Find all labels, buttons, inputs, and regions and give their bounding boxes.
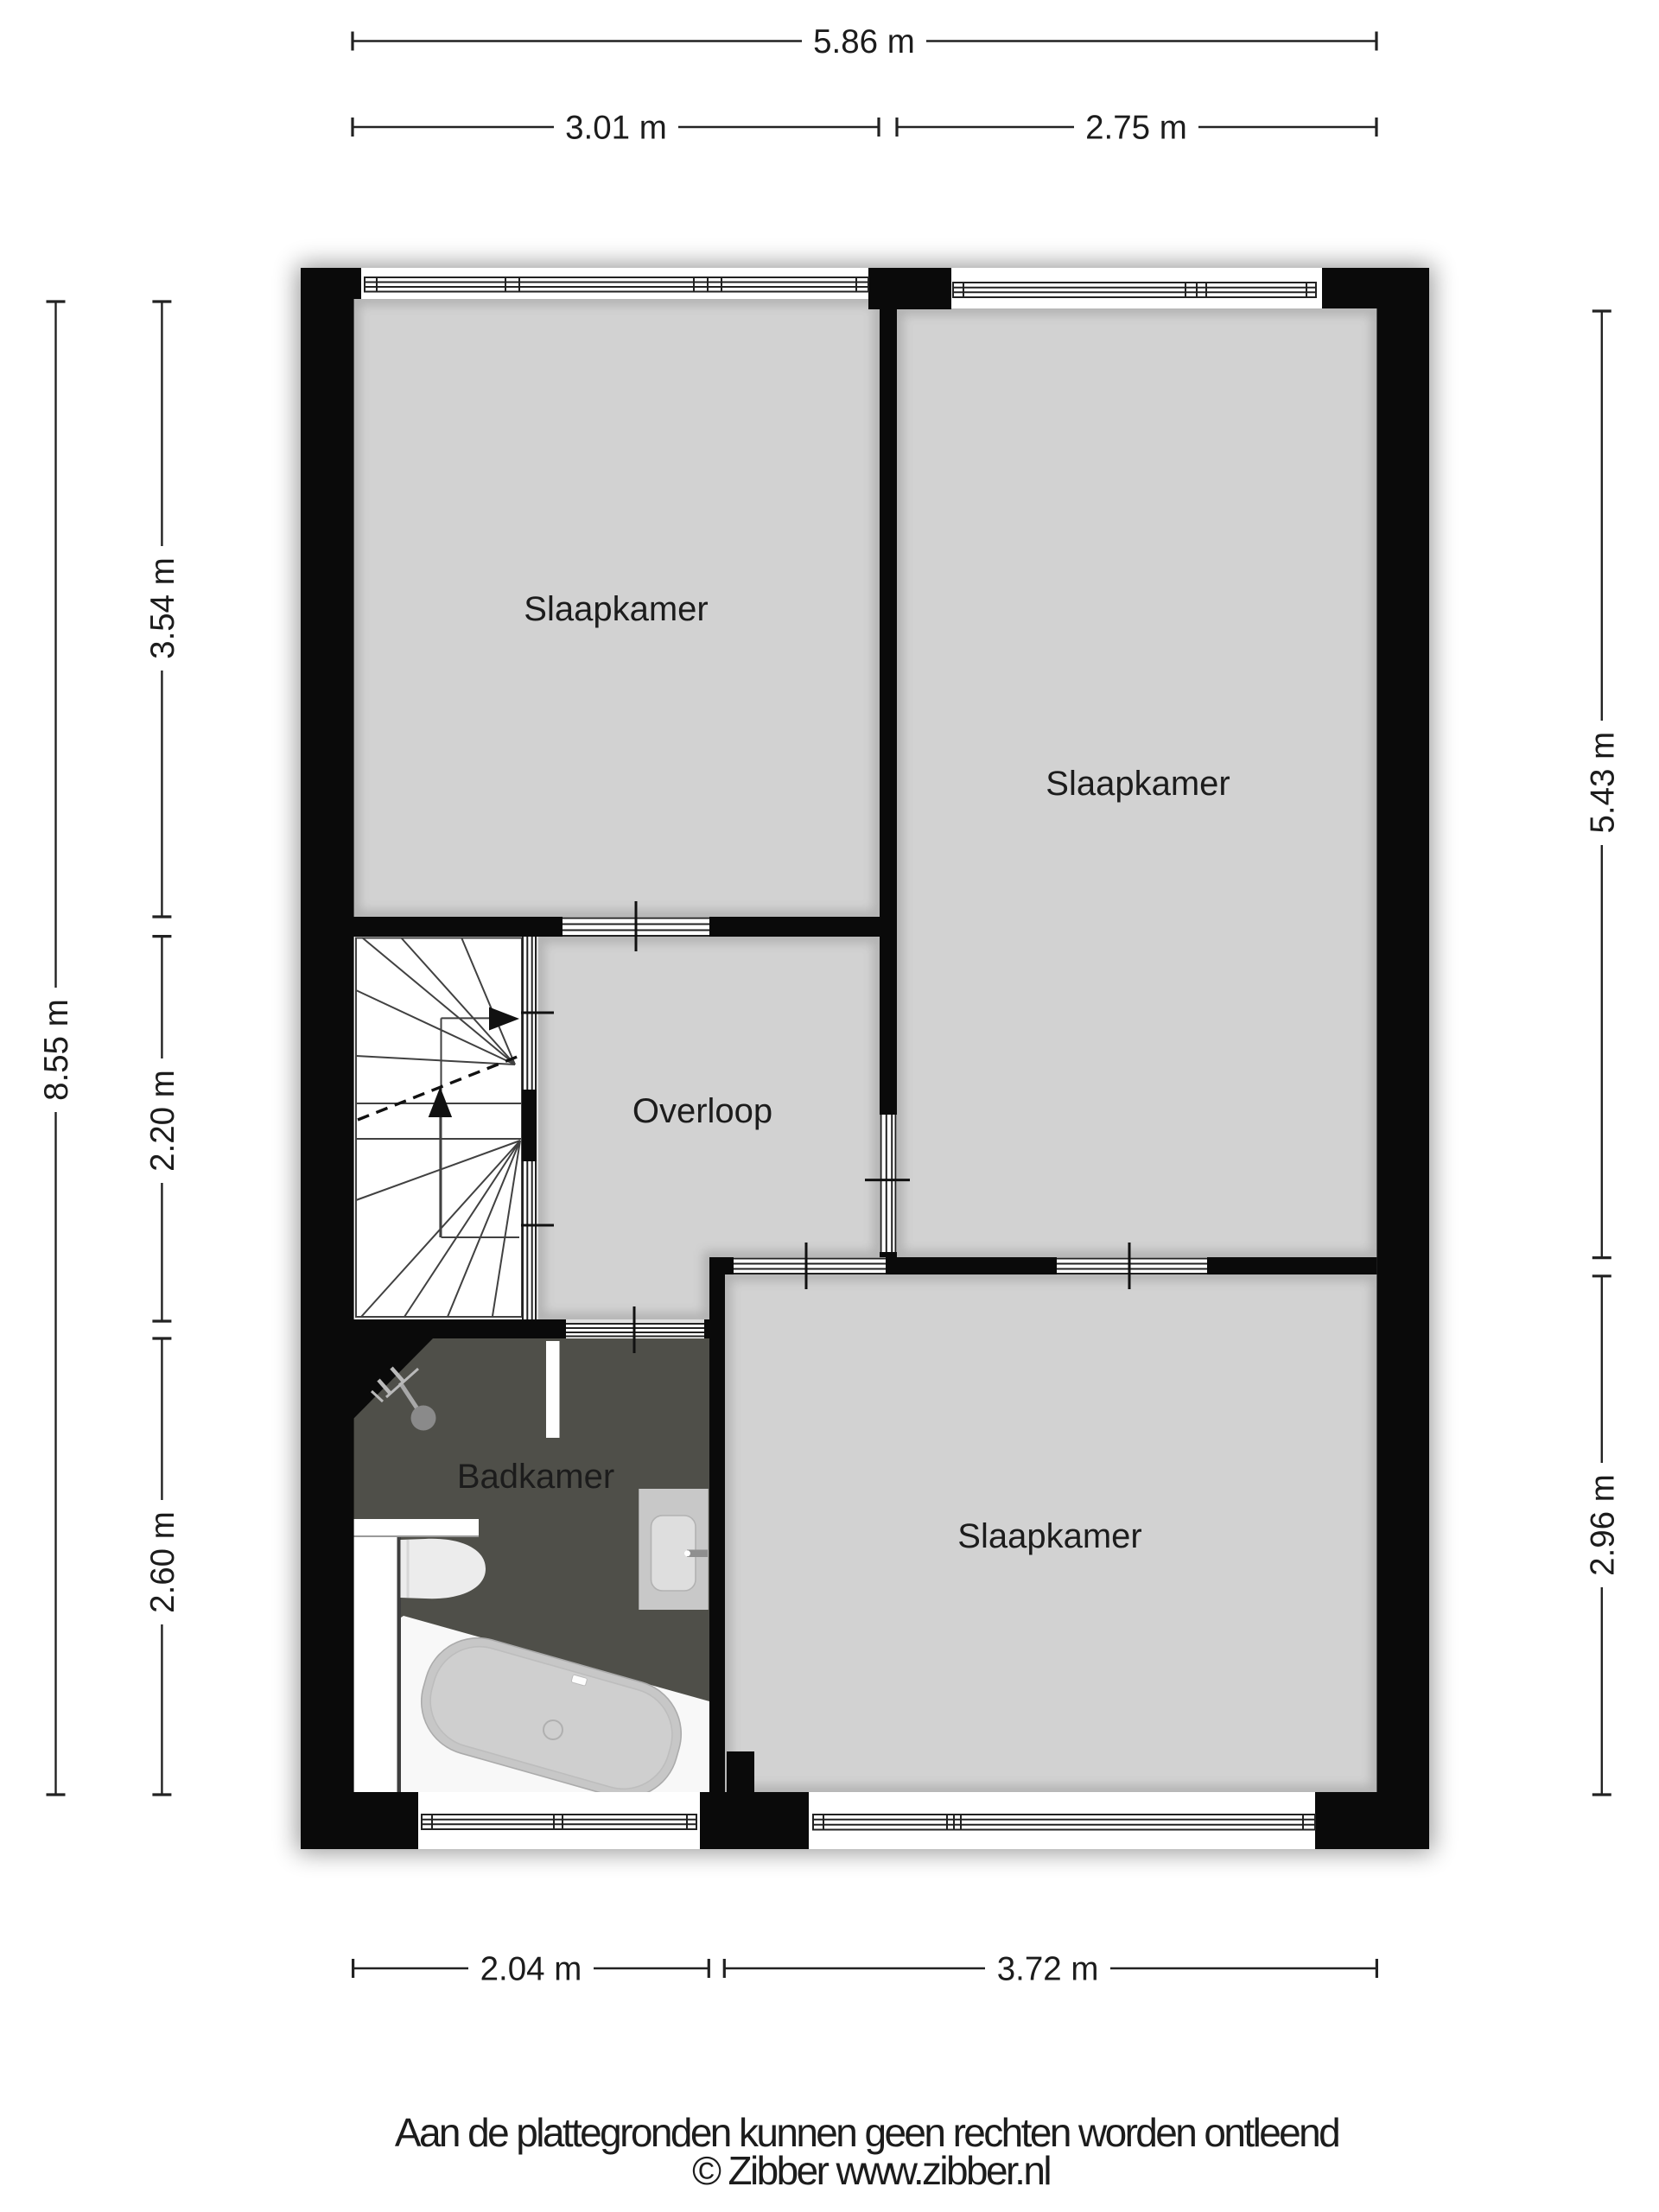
svg-text:Badkamer: Badkamer xyxy=(457,1458,614,1496)
svg-text:2.60 m: 2.60 m xyxy=(144,1511,181,1613)
svg-text:Overloop: Overloop xyxy=(632,1092,772,1130)
svg-text:Slaapkamer: Slaapkamer xyxy=(524,590,708,628)
svg-text:8.55 m: 8.55 m xyxy=(38,999,75,1101)
svg-text:2.20 m: 2.20 m xyxy=(144,1070,181,1172)
svg-text:2.04 m: 2.04 m xyxy=(480,1951,582,1988)
svg-text:3.54 m: 3.54 m xyxy=(144,557,181,659)
svg-text:3.72 m: 3.72 m xyxy=(997,1951,1099,1988)
svg-text:2.75 m: 2.75 m xyxy=(1085,110,1187,147)
svg-text:© Zibber www.zibber.nl: © Zibber www.zibber.nl xyxy=(692,2148,1050,2193)
svg-text:5.43 m: 5.43 m xyxy=(1584,732,1621,834)
svg-text:3.01 m: 3.01 m xyxy=(565,110,667,147)
svg-text:Slaapkamer: Slaapkamer xyxy=(957,1517,1141,1555)
svg-text:Slaapkamer: Slaapkamer xyxy=(1046,765,1230,803)
svg-text:5.86 m: 5.86 m xyxy=(813,23,915,60)
svg-text:2.96 m: 2.96 m xyxy=(1584,1474,1621,1576)
